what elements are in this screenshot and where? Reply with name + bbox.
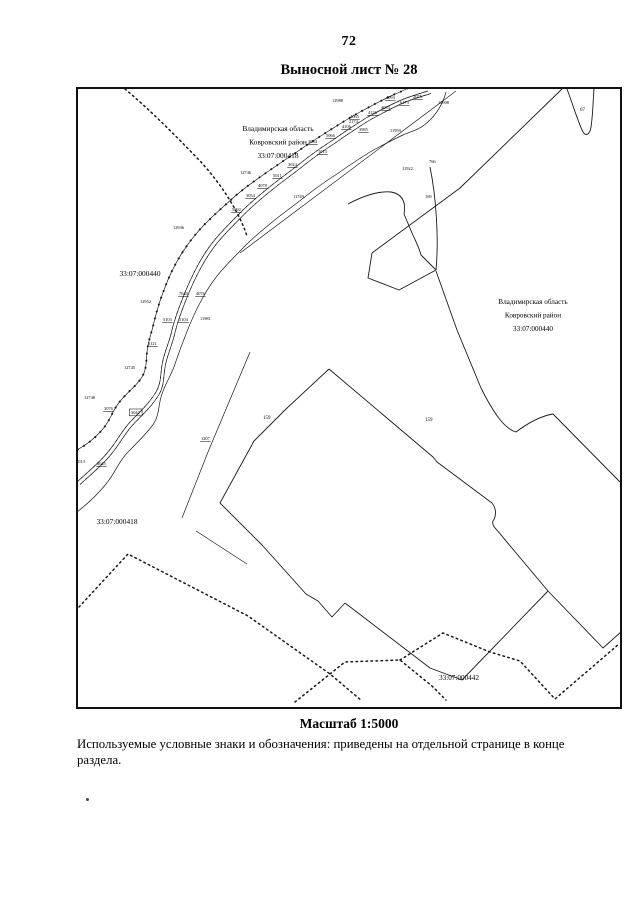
map-point-label: 5103	[163, 317, 173, 322]
inlet-boundary-east	[430, 167, 437, 270]
map-point-label: 3064	[308, 139, 318, 144]
parcel-ne-edge	[329, 369, 622, 648]
map-point-label: 159	[263, 416, 271, 421]
map-point-label: 5104	[179, 317, 189, 322]
map-point-label: 6173	[400, 100, 410, 105]
map-point-label: 11981	[200, 316, 211, 321]
map-point-label: 4065	[350, 114, 360, 119]
legend-note: Используемые условные знаки и обозначени…	[77, 736, 587, 768]
map-point-label: 5011	[273, 173, 282, 178]
map-figure: Владимирская областьКовровский район33:0…	[0, 0, 635, 905]
document-page: { "page": { "number": "72", "title": "Вы…	[0, 0, 635, 905]
diagonal-boundary-line	[372, 89, 562, 253]
straight-boundary-line	[240, 91, 456, 253]
dotted-boundary-bottom-right	[400, 633, 619, 699]
map-region-label: 33:07:000440	[513, 325, 553, 333]
map-point-label: 3042	[131, 410, 140, 415]
map-point-label: 11749	[293, 194, 305, 199]
map-point-label: 3985	[359, 127, 369, 132]
map-point-label: 5092	[232, 207, 241, 212]
map-frame	[77, 88, 621, 708]
map-point-label: 11922	[402, 166, 413, 171]
map-point-label: 7013	[76, 459, 86, 464]
map-point-label: 4076	[196, 291, 206, 296]
map-region-label: 33:07:000418	[257, 151, 298, 160]
map-point-label: 4106	[342, 124, 352, 129]
map-point-label: 12746	[240, 170, 252, 175]
map-point-label: 2075	[413, 94, 423, 99]
strip-boundary-1	[182, 352, 250, 518]
map-point-label: 766	[429, 159, 436, 164]
map-point-label: 5121	[148, 341, 157, 346]
corridor-centerline	[77, 91, 431, 485]
map-point-label: 159	[425, 418, 433, 423]
map-point-label: 3076	[104, 406, 114, 411]
map-region-label: 33:07:000418	[96, 517, 137, 526]
map-point-label: 1207	[201, 436, 211, 441]
map-point-label: 4126	[368, 110, 378, 115]
ink-speck	[86, 798, 89, 801]
map-region-label: Ковровский район	[249, 138, 307, 147]
parcel-sw-edge	[220, 503, 345, 617]
map-point-label: 12988	[332, 98, 344, 103]
map-point-label: 1013	[318, 149, 328, 154]
map-region-label: Владимирская область	[498, 298, 568, 306]
inlet-boundary-west	[348, 192, 436, 270]
dotted-boundary-bottom-left	[79, 554, 362, 701]
map-point-label: 11959	[390, 128, 402, 133]
map-region-label: Владимирская область	[242, 124, 314, 133]
map-point-label: 12745	[124, 365, 136, 370]
map-point-label: 3054	[246, 193, 256, 198]
map-region-labels: Владимирская областьКовровский район33:0…	[96, 124, 568, 682]
parcel-se-edge	[345, 591, 548, 680]
dotted-boundary-bottom-center	[295, 660, 446, 702]
map-point-label: 5066	[326, 133, 336, 138]
map-region-label: Ковровский район	[505, 312, 561, 320]
map-point-label: 12952	[140, 299, 151, 304]
strip-boundary-2	[196, 531, 247, 564]
map-region-label: 33:07:000440	[119, 269, 160, 278]
map-point-label: 12936	[173, 225, 185, 230]
scale-label: Масштаб 1:5000	[77, 716, 621, 732]
map-point-label: 3024	[288, 162, 298, 167]
map-point-labels: 1298812908217411959119227661696715915940…	[76, 94, 586, 466]
parcel-nw-edge	[220, 369, 329, 503]
map-point-label: 4093	[386, 95, 396, 100]
map-point-label: 4078	[258, 183, 268, 188]
map-point-label: 169	[425, 194, 432, 199]
map-point-label: 6045	[97, 461, 107, 466]
map-region-label: 33:07:000442	[439, 674, 479, 682]
map-point-label: 4063	[381, 105, 391, 110]
dotted-boundary-topleft	[125, 89, 247, 236]
inlet-boundary-south	[368, 253, 436, 290]
map-point-label: 7640	[179, 291, 189, 296]
map-point-label: 12748	[84, 395, 96, 400]
map-point-label: 12908	[438, 100, 450, 105]
map-point-label: 67	[580, 108, 586, 113]
